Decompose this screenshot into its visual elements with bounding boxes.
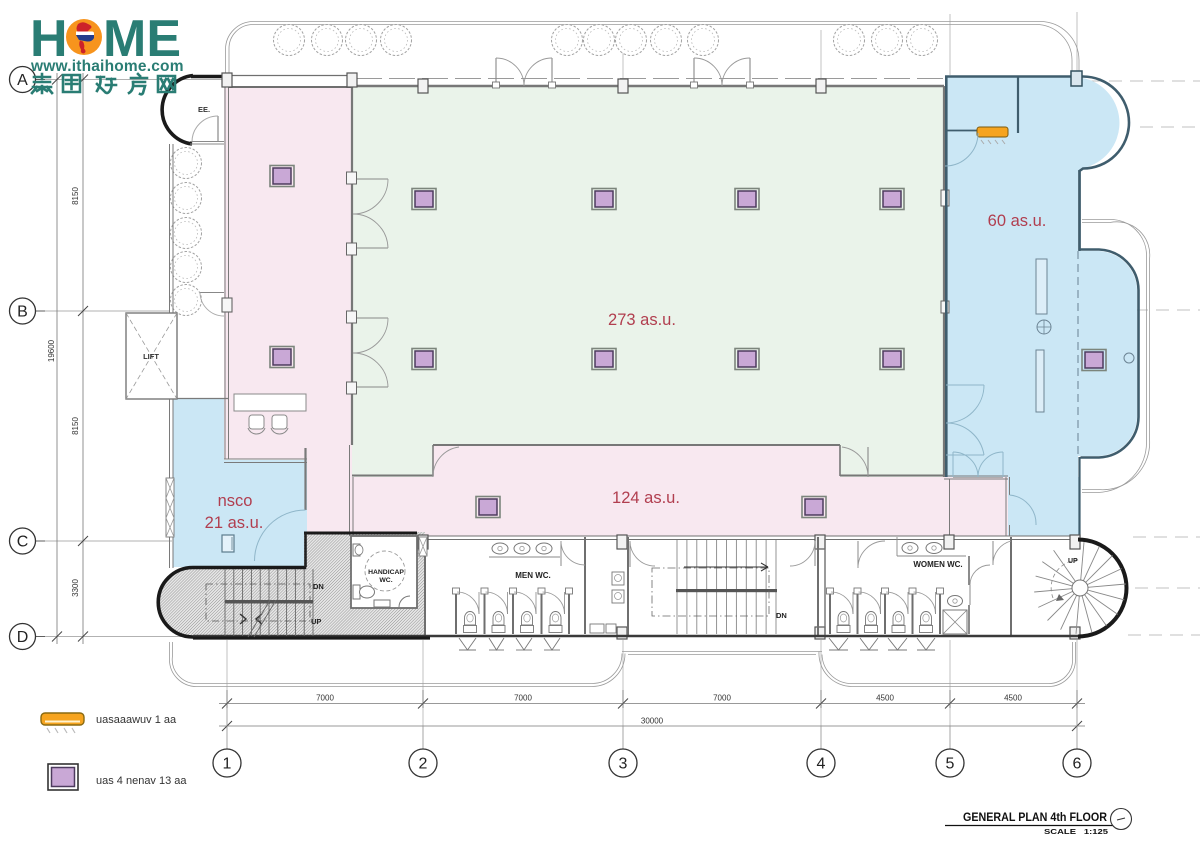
svg-text:GENERAL PLAN 4th FLOOR: GENERAL PLAN 4th FLOOR — [963, 810, 1107, 824]
svg-text:MEN WC.: MEN WC. — [515, 571, 551, 580]
svg-text:30000: 30000 — [641, 717, 664, 726]
svg-text:D: D — [17, 629, 29, 646]
svg-text:HANDICAP: HANDICAP — [368, 569, 404, 576]
svg-text:124 as.u.: 124 as.u. — [612, 489, 680, 507]
svg-text:4500: 4500 — [1004, 694, 1022, 703]
svg-text:3300: 3300 — [71, 579, 80, 597]
svg-text:WC.: WC. — [379, 577, 392, 584]
svg-text:8150: 8150 — [71, 417, 80, 435]
svg-text:uas 4 nenav 13 aa: uas 4 nenav 13 aa — [96, 775, 187, 787]
svg-text:A: A — [17, 72, 28, 89]
svg-text:UP: UP — [311, 617, 321, 626]
svg-text:7000: 7000 — [713, 694, 731, 703]
svg-text:DN: DN — [313, 582, 324, 591]
svg-text:LIFT: LIFT — [143, 352, 159, 361]
svg-text:5: 5 — [946, 756, 955, 773]
svg-text:2: 2 — [419, 756, 428, 773]
svg-text:4500: 4500 — [876, 694, 894, 703]
svg-text:www.ithaihome.com: www.ithaihome.com — [30, 58, 184, 75]
svg-text:WOMEN WC.: WOMEN WC. — [913, 560, 962, 569]
svg-text:nsco: nsco — [218, 492, 253, 510]
svg-text:6: 6 — [1073, 756, 1082, 773]
svg-text:DN: DN — [776, 611, 787, 620]
svg-text:8150: 8150 — [71, 187, 80, 205]
svg-text:1: 1 — [223, 756, 232, 773]
svg-text:4: 4 — [817, 756, 826, 773]
svg-text:60 as.u.: 60 as.u. — [988, 212, 1047, 230]
svg-text:19600: 19600 — [47, 339, 56, 362]
svg-text:EE.: EE. — [198, 105, 210, 114]
svg-text:uasaaawuv 1 aa: uasaaawuv 1 aa — [96, 714, 177, 726]
svg-text:7000: 7000 — [316, 694, 334, 703]
svg-text:21 as.u.: 21 as.u. — [205, 514, 264, 532]
svg-text:3: 3 — [619, 756, 628, 773]
svg-text:C: C — [17, 534, 29, 551]
svg-text:7000: 7000 — [514, 694, 532, 703]
svg-text:B: B — [17, 304, 28, 321]
svg-text:UP: UP — [1068, 558, 1078, 565]
svg-text:SCALE 1:125: SCALE 1:125 — [1044, 827, 1109, 836]
svg-text:273 as.u.: 273 as.u. — [608, 311, 676, 329]
